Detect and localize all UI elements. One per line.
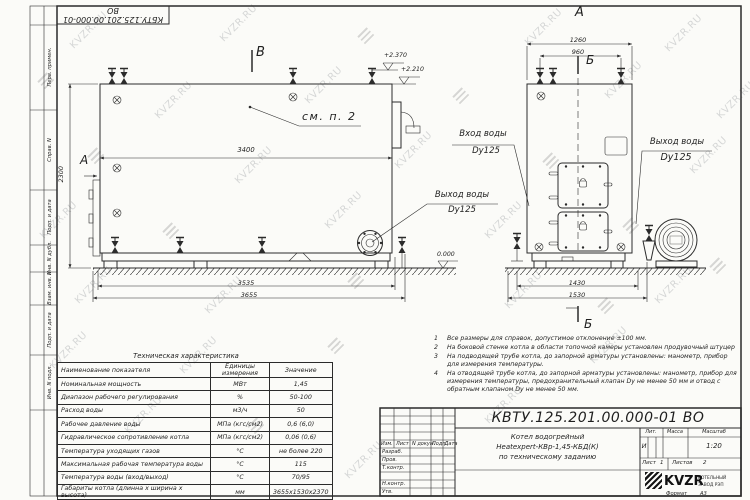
table-row: Гидравлическое сопротивление котлаМПа (к… (58, 431, 333, 444)
title-block-designation: КВТУ.125.201.00.000-01 ВО (455, 411, 741, 425)
support-frame (102, 253, 390, 261)
lifting-eye-icon (289, 93, 297, 101)
valve-icon (617, 69, 625, 85)
lifting-eye-icon (113, 209, 121, 217)
drawing-sheet: KVZR.RUKVZR.RUKVZR.RUKVZR.RUKVZR.RUKVZR.… (0, 0, 750, 500)
company-name-line2: ЗАВОД РЭП (698, 484, 724, 488)
role-tkontr: Т.контр. (382, 466, 404, 471)
dim-1430: 1430 (569, 280, 586, 287)
doc-title-line3: по техническому заданию (457, 454, 638, 461)
ground-hatch (93, 268, 456, 275)
lifting-eye-icon (113, 96, 121, 104)
door-handle-icon (580, 179, 587, 188)
table-row: Номинальная мощностьМВт1,45 (58, 378, 333, 391)
valve-icon (111, 238, 119, 254)
role-nkontr: Н.контр. (382, 482, 405, 487)
elevation-2210: +2.210 (401, 67, 424, 73)
role-razrab: Разраб. (382, 450, 402, 455)
lifting-eye-icon (535, 243, 543, 251)
lifting-eye-icon (537, 92, 545, 100)
table-row: Габариты котла (длинна х ширина х высота… (58, 485, 333, 500)
valve-icon (549, 69, 557, 85)
elevation-2370: +2.370 (384, 53, 407, 59)
top-stamp-designation: КБТУ.125.201.00.000-01 ВО (57, 6, 169, 24)
dim-960: 960 (572, 49, 584, 56)
valve-icon (108, 69, 116, 85)
burner-plate (93, 180, 100, 256)
table-row: Температура воды (вход/выход)°С70/95 (58, 471, 333, 484)
sheet-value: 1 (660, 461, 664, 467)
change-col-date: Дата (445, 442, 458, 447)
sheets-value: 2 (703, 461, 707, 467)
view-label-a-top: А (575, 6, 584, 19)
upper-door (558, 163, 608, 208)
sheet-label: Лист (642, 461, 656, 467)
lifting-eye-icon (113, 164, 121, 172)
notes-list: 1Все размеры для справок, допустимое отк… (434, 335, 737, 395)
company-logo-icon (645, 472, 662, 489)
dim-2300: 2300 (58, 166, 65, 183)
change-col-izm: Изм. (381, 442, 393, 447)
outlet-right-label: Выход воды (650, 138, 704, 147)
inlet-label: Вход воды (459, 130, 506, 139)
section-label-v: В (256, 46, 265, 59)
scale-header: Масштаб (702, 430, 726, 435)
note-item: 4На отводящей трубе котла, до запорной а… (434, 370, 737, 393)
sheets-label: Листов (672, 461, 693, 467)
company-name-line1: КОТЕЛЬНЫЙ (698, 477, 726, 481)
valve-icon (120, 69, 128, 85)
valve-icon (258, 238, 266, 254)
lit-header: Лит. (645, 430, 657, 435)
table-row: Расход водым3/ч50 (58, 404, 333, 417)
format-value: А3 (700, 492, 707, 497)
outlet-leader (372, 204, 498, 242)
lifting-eye-icon (617, 243, 625, 251)
elevation-zero: 0.000 (437, 252, 455, 258)
inlet-dn-label: Dy125 (472, 147, 500, 156)
fan-base (656, 261, 697, 267)
note-item: 2На боковой стенке котла в области топоч… (434, 344, 737, 352)
margin-field: Перв. примен. (44, 22, 56, 112)
dim-3400: 3400 (237, 147, 254, 154)
scale-value: 1:20 (706, 443, 722, 450)
note-item: 3На подводящей трубе котла, до запорной … (434, 353, 737, 368)
valve-icon (176, 238, 184, 254)
check-valve-icon (645, 226, 653, 242)
role-utv: Утв. (382, 490, 393, 495)
doc-title-line1: Котел водогрейный (457, 434, 638, 441)
valve-icon (289, 69, 297, 85)
dim-3655: 3655 (241, 292, 258, 299)
spec-table-title: Техническая характеристика (133, 353, 239, 360)
spec-table: Наименование показателя Единицы измерени… (57, 362, 333, 500)
lower-door (558, 212, 608, 251)
door-handle-icon (580, 222, 587, 231)
table-header-row: Наименование показателя Единицы измерени… (58, 363, 333, 378)
note-item: 1Все размеры для справок, допустимое отк… (434, 335, 737, 343)
table-row: Диапазон рабочего регулирования%50-100 (58, 391, 333, 404)
margin-field: Инв. N подл. (44, 337, 56, 427)
valve-icon (368, 69, 376, 85)
sight-glass (605, 137, 627, 155)
outlet-right-dn-label: Dy125 (660, 153, 691, 163)
outlet-label: Выход воды (435, 191, 489, 200)
change-col-list: Лист (396, 442, 409, 447)
table-row: Температура уходящих газов°Сне более 220 (58, 444, 333, 457)
dim-1260: 1260 (570, 37, 587, 44)
outlet-dn-label: Dy125 (448, 206, 476, 215)
mass-header: Масса (667, 430, 683, 435)
lit-value: И (642, 443, 647, 450)
valve-icon (536, 69, 544, 85)
section-label-b-top: Б (586, 54, 594, 66)
table-row: Максимальная рабочая температура воды°С1… (58, 458, 333, 471)
dim-3535: 3535 (238, 280, 255, 287)
drain-valve-icon (398, 238, 406, 254)
see-note-label: см. п. 2 (302, 111, 357, 122)
flue-outlet (392, 102, 401, 148)
fan (655, 219, 697, 261)
drain-valve-icon (513, 234, 521, 250)
view-label-a: А (80, 154, 88, 166)
dim-1530: 1530 (569, 292, 586, 299)
main-view-linework (68, 50, 498, 302)
role-prov: Пров. (382, 458, 397, 463)
doc-title-line2: Heatexpert-КВр-1,45-КБД(К) (457, 444, 638, 451)
base-frame (532, 253, 625, 261)
section-label-b-bottom: Б (584, 318, 592, 330)
table-row: Рабочее давление водыМПа (кгс/см2)0,6 (6… (58, 418, 333, 431)
format-label: Формат (666, 492, 687, 497)
ground-hatch (505, 268, 706, 275)
